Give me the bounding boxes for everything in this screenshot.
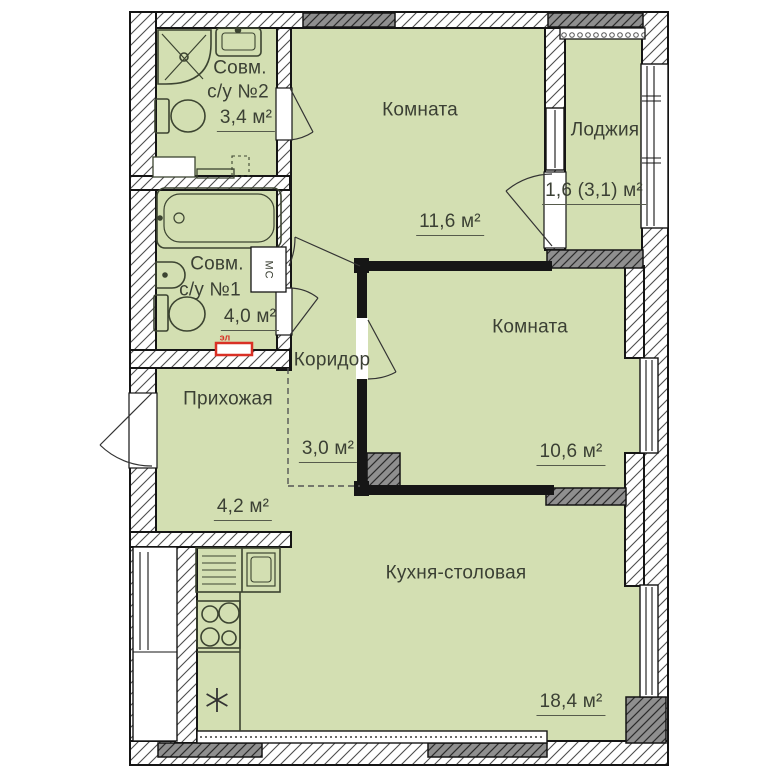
room2-name: Комната [492,318,568,337]
floor-plan: Совм. с/у №2 3,4 м² Комната 11,6 м² Лодж… [0,0,768,768]
room2-area: 10,6 м² [536,442,605,466]
kitchen-name: Кухня-столовая [386,564,527,583]
room1-area: 11,6 м² [416,212,484,236]
room-labels: Совм. с/у №2 3,4 м² Комната 11,6 м² Лодж… [0,0,768,768]
loggia-name: Лоджия [571,121,640,140]
hallway-area: 4,2 м² [214,497,272,521]
loggia-area: 1,6 (3,1) м² [542,181,646,205]
bath2-name-line1: Совм. [213,59,267,78]
kitchen-area: 18,4 м² [536,692,605,716]
washing-machine-label: МС [263,260,274,279]
hallway-name: Прихожая [183,390,273,409]
bath1-name-line1: Совм. [190,255,244,274]
room1-name: Комната [382,101,458,120]
bath1-name-line2: с/у №1 [179,281,241,300]
corridor-area: 3,0 м² [299,439,357,463]
bath2-name-line2: с/у №2 [207,83,269,102]
bath1-area: 4,0 м² [221,307,279,331]
corridor-name: Коридор [294,351,370,370]
bath2-area: 3,4 м² [217,108,275,132]
electrical-panel-label: эл [220,334,231,343]
